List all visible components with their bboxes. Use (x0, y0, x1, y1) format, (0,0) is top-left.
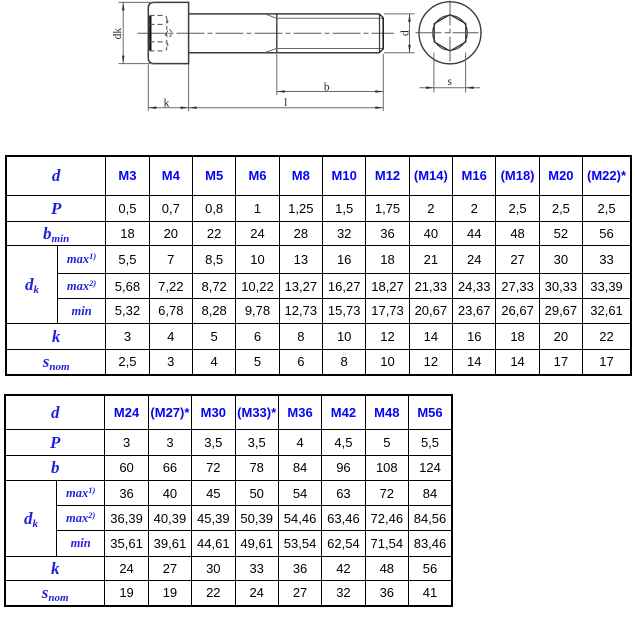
svg-text:dk: dk (112, 28, 124, 40)
svg-text:k: k (164, 97, 170, 109)
svg-text:b: b (324, 81, 330, 93)
svg-text:d: d (400, 30, 412, 36)
svg-text:s: s (448, 76, 453, 88)
svg-text:l: l (284, 97, 287, 109)
